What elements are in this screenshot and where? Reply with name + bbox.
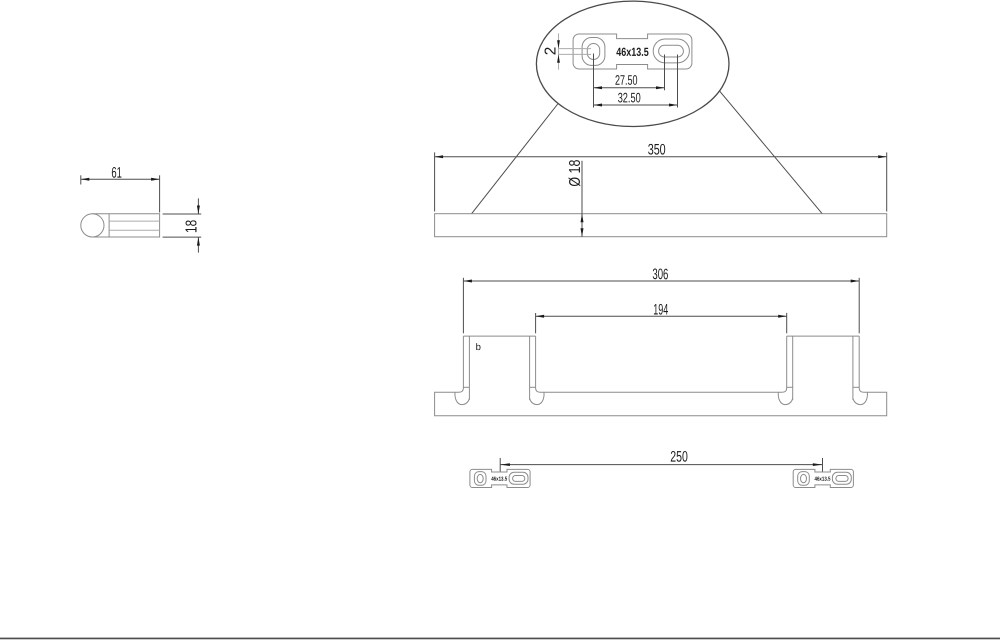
svg-text:32.50: 32.50	[618, 90, 641, 105]
svg-text:306: 306	[652, 266, 668, 283]
svg-text:250: 250	[670, 449, 688, 466]
svg-text:61: 61	[111, 165, 122, 182]
svg-text:Ø 18: Ø 18	[567, 160, 584, 187]
svg-text:46x13.5: 46x13.5	[616, 45, 649, 59]
svg-text:27.50: 27.50	[615, 73, 638, 88]
svg-text:b: b	[476, 342, 481, 353]
svg-text:350: 350	[648, 141, 666, 158]
svg-text:2: 2	[542, 47, 559, 56]
svg-text:46x13.5: 46x13.5	[814, 477, 831, 483]
svg-text:46x13.5: 46x13.5	[491, 477, 508, 483]
svg-text:194: 194	[653, 301, 668, 318]
svg-text:18: 18	[183, 220, 200, 233]
